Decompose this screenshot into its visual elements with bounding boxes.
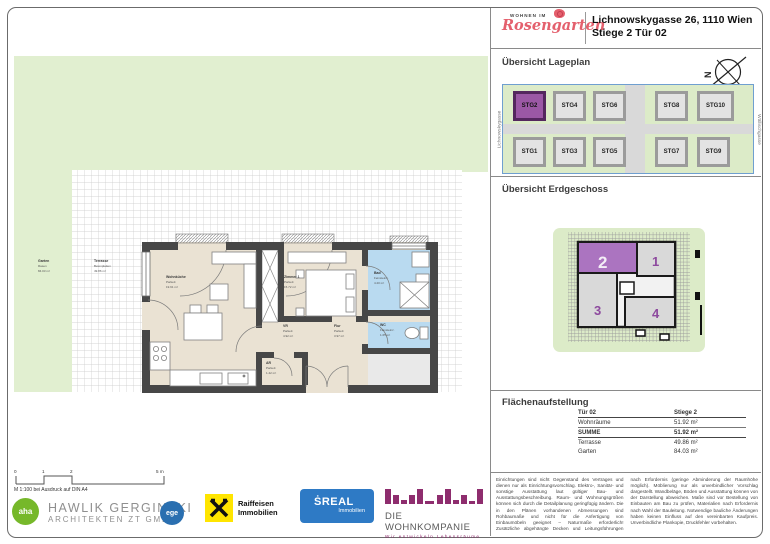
sidebar-divider — [490, 8, 491, 536]
scale-note: M 1:100 bei Ausdruck auf DIN A4 — [14, 487, 88, 493]
street-label-left: Lichnowskygasse — [497, 111, 502, 149]
building-stg8: STG8 — [655, 91, 688, 121]
building-stg3: STG3 — [553, 137, 586, 167]
svg-text:1.65 m²: 1.65 m² — [380, 333, 390, 337]
svg-text:Zimmer 1: Zimmer 1 — [284, 275, 300, 279]
header-rule — [491, 48, 761, 49]
rosengarten-logo: WOHNEN IM Rosengarten — [502, 13, 580, 33]
road-vertical — [625, 85, 645, 173]
building-stg5: STG5 — [593, 137, 626, 167]
building-stg6: STG6 — [593, 91, 626, 121]
erdgeschoss-diagram: 2 1 3 4 — [495, 200, 761, 385]
unit-1-number: 1 — [652, 254, 659, 269]
stairwell-floor — [368, 354, 430, 385]
architect-subtitle: ARCHITEKTEN ZT GMBH — [48, 515, 177, 524]
aha-logo: aha — [12, 498, 39, 525]
sreal-wordmark: ṠREAL — [314, 496, 354, 508]
flaechen-rule — [491, 472, 761, 473]
svg-text:Wohnküche: Wohnküche — [166, 275, 186, 279]
table-row: Garten 84.03 m² — [578, 447, 746, 456]
lageplan-rule — [491, 176, 761, 177]
svg-text:1: 1 — [42, 469, 45, 474]
area-table: Tür 02 Stiege 2 Wohnräume 51.92 m² SUMME… — [578, 408, 746, 456]
wohnkompanie-name: DIE WOHNKOMPANIE — [385, 511, 487, 533]
legal-col2: Möblierung nur als unverbindlicher Vorsc… — [631, 483, 759, 525]
svg-text:3.97 m²: 3.97 m² — [334, 334, 344, 338]
col-tuer: Tür 02 — [578, 410, 670, 416]
wohnkompanie-tagline: Wir entwickeln Lebensräume — [385, 534, 487, 539]
building-stg2: STG2 — [513, 91, 546, 121]
raiffeisen-gable-cross-icon — [208, 497, 230, 519]
project-address: Lichnowskygasse 26, 1110 Wien Stiege 2 T… — [592, 14, 752, 40]
svg-text:15.72 m²: 15.72 m² — [284, 285, 296, 289]
svg-text:WC: WC — [380, 323, 386, 327]
rose-icon — [554, 9, 565, 18]
address-line2: Stiege 2 Tür 02 — [592, 27, 752, 40]
table-row: Terrasse 49.86 m² — [578, 438, 746, 447]
logo-address-divider — [585, 12, 586, 44]
flaechen-title: Flächenaufstellung — [502, 397, 589, 408]
svg-text:Parkett: Parkett — [284, 280, 294, 284]
svg-text:Parkett: Parkett — [334, 329, 344, 333]
lageplan-title: Übersicht Lageplan — [502, 57, 590, 68]
svg-text:Bad: Bad — [374, 271, 381, 275]
raiffeisen-logo — [205, 494, 233, 522]
svg-text:Terrasse: Terrasse — [94, 259, 108, 263]
svg-text:84.03 m²: 84.03 m² — [38, 269, 50, 273]
raiffeisen-text: Raiffeisen Immobilien — [238, 499, 278, 518]
building-stg1: STG1 — [513, 137, 546, 167]
svg-text:VR: VR — [283, 324, 288, 328]
svg-text:0: 0 — [14, 469, 17, 474]
table-row: Wohnräume 51.92 m² — [578, 418, 746, 428]
svg-text:Garten: Garten — [38, 259, 49, 263]
area-table-header: Tür 02 Stiege 2 — [578, 408, 746, 418]
svg-text:Parkett: Parkett — [283, 329, 293, 333]
table-row: SUMME 51.92 m² — [578, 428, 746, 438]
col-stiege: Stiege 2 — [674, 410, 746, 416]
svg-text:Feinsteinz.: Feinsteinz. — [380, 328, 395, 332]
building-stg9: STG9 — [697, 137, 730, 167]
svg-text:1.42 m²: 1.42 m² — [266, 371, 276, 375]
wohnkompanie-logo: DIE WOHNKOMPANIE Wir entwickeln Lebensrä… — [385, 489, 487, 539]
street-label-right: Wällischgasse — [756, 114, 761, 145]
svg-text:AR: AR — [266, 361, 272, 365]
address-line1: Lichnowskygasse 26, 1110 Wien — [592, 14, 752, 27]
sreal-sub: Immobilien — [338, 508, 365, 514]
building-stg4: STG4 — [553, 91, 586, 121]
legal-disclaimer: Einrichtungen sind nicht Gegenstand des … — [496, 477, 758, 533]
svg-text:4.20 m²: 4.20 m² — [374, 281, 384, 285]
siteplan-map: STG2 STG4 STG6 STG8 STG10 STG1 STG3 STG5… — [502, 84, 754, 174]
svg-text:49.86 m²: 49.86 m² — [94, 269, 106, 273]
erdgeschoss-title: Übersicht Erdgeschoss — [502, 184, 608, 195]
unit-2-number: 2 — [598, 253, 607, 272]
svg-text:Flur: Flur — [334, 324, 341, 328]
ege-logo: ege — [160, 501, 184, 525]
svg-text:Rasen: Rasen — [38, 264, 47, 268]
logo-script-text: Rosengarten — [502, 18, 580, 33]
building-stg10: STG10 — [697, 91, 734, 121]
svg-text:Feinsteinz.: Feinsteinz. — [374, 276, 389, 280]
unit-3-number: 3 — [594, 303, 601, 318]
erdgeschoss-rule — [491, 390, 761, 391]
svg-text:Parkett: Parkett — [266, 366, 276, 370]
wohnkompanie-bars-icon — [385, 489, 485, 504]
expose-sheet: Wohnküche Parkett 19.91 m² Zimmer 1 Park… — [0, 0, 770, 544]
svg-text:5 m: 5 m — [156, 469, 164, 474]
svg-text:N: N — [703, 72, 713, 79]
svg-text:Betonplatten: Betonplatten — [94, 264, 111, 268]
sreal-logo: ṠREAL Immobilien — [300, 489, 374, 523]
svg-text:Parkett: Parkett — [166, 280, 176, 284]
svg-text:4.92 m²: 4.92 m² — [283, 334, 293, 338]
svg-text:2: 2 — [70, 469, 73, 474]
svg-text:19.91 m²: 19.91 m² — [166, 285, 178, 289]
building-stg7: STG7 — [655, 137, 688, 167]
floor-plan-drawing: Wohnküche Parkett 19.91 m² Zimmer 1 Park… — [0, 0, 490, 460]
unit-4-number: 4 — [652, 306, 660, 321]
shaft — [262, 250, 278, 322]
